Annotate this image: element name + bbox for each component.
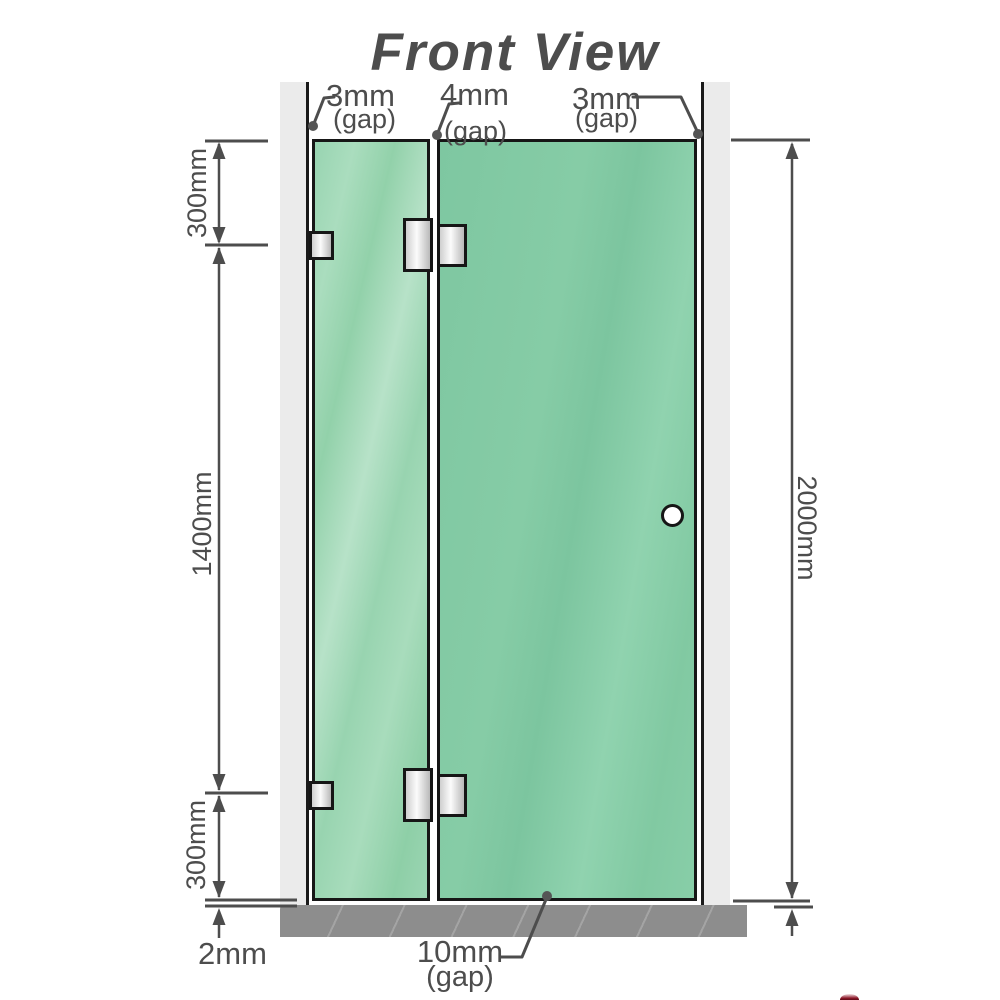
gap-label-top-left-unit: (gap) <box>333 106 396 133</box>
door-handle-knob-icon <box>661 504 684 527</box>
wall-bracket-top <box>309 231 334 260</box>
door-glass-panel <box>437 139 697 901</box>
cropped-logo-fragment <box>840 994 859 1000</box>
dimension-label-right-overall: 2000mm <box>793 458 821 598</box>
shower-screen-front-view-diagram: Front View <box>0 0 1000 1000</box>
floor-gap-label: 2mm <box>198 936 267 972</box>
dimension-label-left-middle: 1400mm <box>188 454 216 594</box>
gap-label-top-right-unit: (gap) <box>575 105 638 132</box>
wall-bracket-bottom <box>309 781 334 810</box>
page-title: Front View <box>290 22 740 82</box>
gap-label-top-middle-unit: (gap) <box>444 118 507 145</box>
hinge-bottom-door-plate <box>437 774 467 817</box>
gap-label-top-middle-value: 4mm <box>440 79 509 110</box>
gap-label-bottom-unit: (gap) <box>415 963 505 992</box>
wall-strip-left <box>280 82 309 905</box>
floor-base <box>280 905 747 937</box>
hinge-top-door-plate <box>437 224 467 267</box>
dimension-label-left-top: 300mm <box>183 128 211 258</box>
wall-strip-right <box>701 82 730 905</box>
dimension-label-left-bottom: 300mm <box>182 780 210 910</box>
hinge-bottom-fixed-plate <box>403 768 433 822</box>
hinge-top-fixed-plate <box>403 218 433 272</box>
